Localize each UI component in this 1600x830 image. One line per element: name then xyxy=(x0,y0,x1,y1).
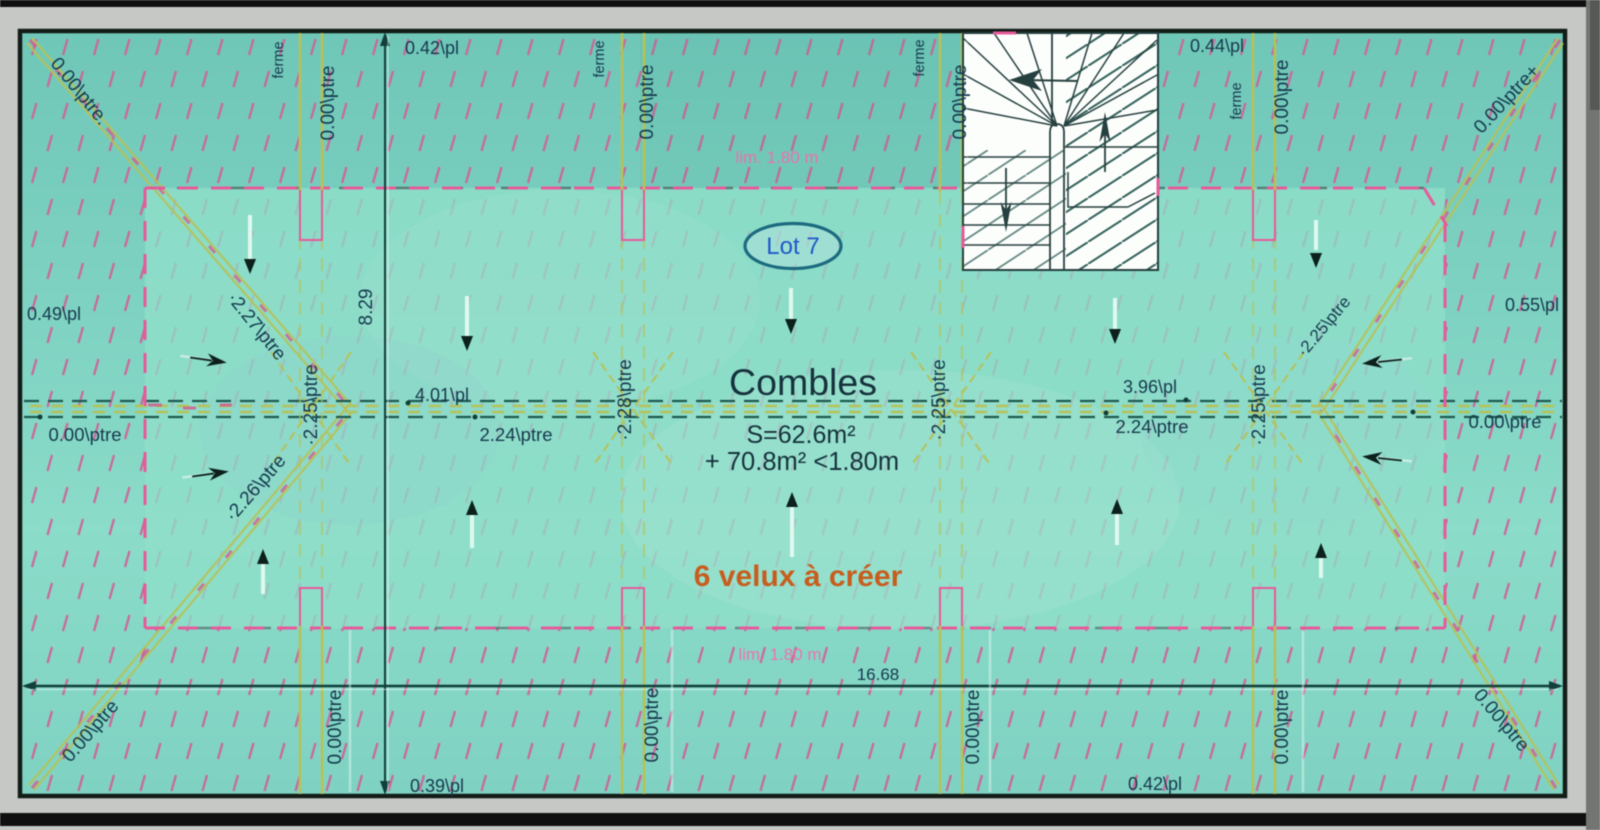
svg-text:·2.25\ptre: ·2.25\ptre xyxy=(301,364,322,445)
svg-text:Combles: Combles xyxy=(729,361,877,403)
svg-text:0.49\pl: 0.49\pl xyxy=(27,304,81,324)
svg-text:2.24\ptre: 2.24\ptre xyxy=(1115,416,1188,437)
svg-text:0.39\pl: 0.39\pl xyxy=(410,776,464,796)
svg-text:0.00\ptre: 0.00\ptre xyxy=(1468,411,1541,432)
svg-text:ferme: ferme xyxy=(1229,82,1245,119)
svg-text:·2.25\ptre: ·2.25\ptre xyxy=(929,359,950,440)
svg-text:lim. 1.80 m: lim. 1.80 m xyxy=(735,148,818,167)
svg-text:2.24\ptre: 2.24\ptre xyxy=(479,424,552,445)
svg-text:0.00\ptre: 0.00\ptre xyxy=(642,688,663,763)
svg-text:16.68: 16.68 xyxy=(857,665,900,684)
svg-text:3.96\pl: 3.96\pl xyxy=(1123,377,1177,397)
svg-text:0.00\ptre: 0.00\ptre xyxy=(1272,60,1293,135)
svg-text:0.00\ptre: 0.00\ptre xyxy=(1272,690,1293,765)
svg-text:0.00\ptre: 0.00\ptre xyxy=(963,690,984,765)
svg-text:0.42\pl: 0.42\pl xyxy=(1128,774,1182,794)
svg-text:0.44\pl: 0.44\pl xyxy=(1190,36,1244,56)
svg-text:0.55\pl: 0.55\pl xyxy=(1505,295,1559,315)
svg-text:6 velux à créer: 6 velux à créer xyxy=(694,560,903,593)
svg-text:·2.25\ptre: ·2.25\ptre xyxy=(1249,364,1270,445)
svg-text:ferme: ferme xyxy=(592,40,608,77)
svg-text:0.00\ptre: 0.00\ptre xyxy=(318,66,339,141)
svg-text:ferme: ferme xyxy=(271,41,287,78)
svg-text:0.00\ptre: 0.00\ptre xyxy=(48,424,121,445)
svg-text:lim. 1.80 m: lim. 1.80 m xyxy=(738,645,821,664)
svg-text:4.01\pl: 4.01\pl xyxy=(415,385,469,405)
svg-text:8.29: 8.29 xyxy=(356,289,377,326)
svg-text:0.00\ptre: 0.00\ptre xyxy=(325,690,346,765)
svg-text:0.00\ptre: 0.00\ptre xyxy=(950,65,971,140)
svg-text:+ 70.8m² <1.80m: + 70.8m² <1.80m xyxy=(705,448,899,476)
svg-text:0.42\pl: 0.42\pl xyxy=(405,38,459,58)
svg-text:S=62.6m²: S=62.6m² xyxy=(746,421,855,449)
svg-text:Lot 7: Lot 7 xyxy=(766,233,819,260)
svg-text:ferme: ferme xyxy=(912,39,928,76)
svg-text:·2.28\ptre: ·2.28\ptre xyxy=(615,359,636,440)
svg-text:0.00\ptre: 0.00\ptre xyxy=(637,65,658,140)
